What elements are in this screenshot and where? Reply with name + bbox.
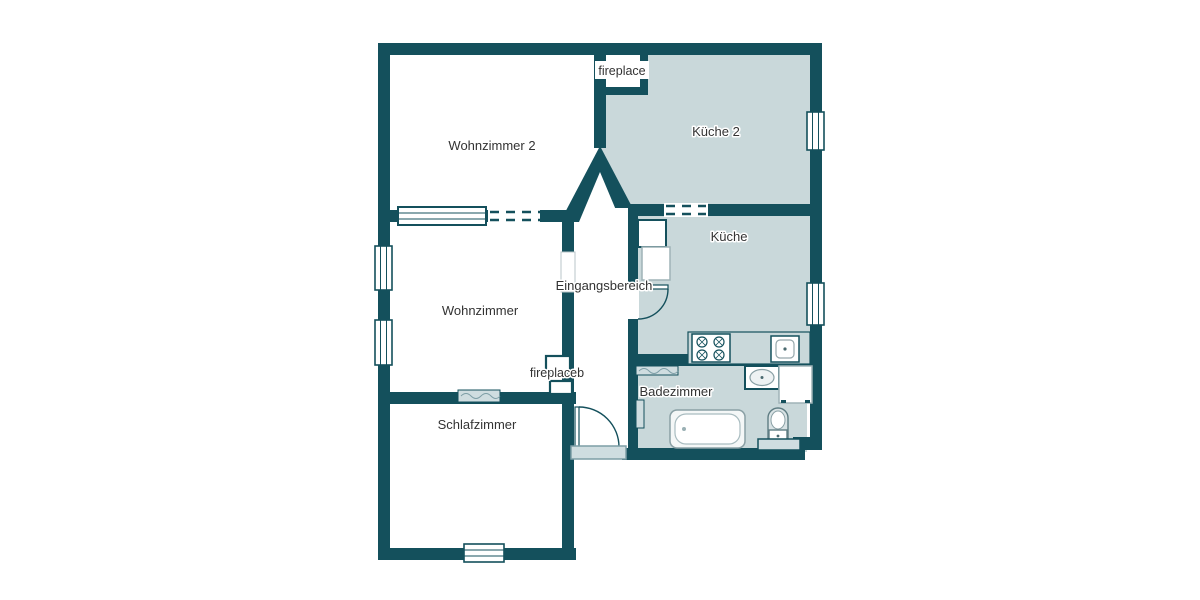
- window-icon: [398, 207, 486, 225]
- label-schlafzimmer: Schlafzimmer: [438, 417, 517, 432]
- radiator-icon: [458, 390, 500, 402]
- window-icon: [807, 283, 824, 325]
- stove-icon: [692, 334, 730, 362]
- washer-icon: [779, 366, 812, 403]
- opening-bay-corridor: [604, 208, 628, 230]
- fireplaceb-niche: [550, 381, 572, 394]
- floor-plan-canvas: fireplace Wohnzimmer 2 Küche 2 Küche Ein…: [0, 0, 1200, 600]
- label-kueche-2: Küche 2: [692, 124, 740, 139]
- floor-plan-drawing: fireplace Wohnzimmer 2 Küche 2 Küche Ein…: [0, 0, 1200, 600]
- doorstep-icon: [571, 446, 626, 459]
- dashed-opening-left: [488, 209, 540, 223]
- radiator-icon: [636, 400, 644, 428]
- pedestal-sink-icon: [768, 408, 788, 442]
- wall-divider-kueche: [628, 204, 810, 216]
- window-icon: [375, 320, 392, 365]
- room-wohnzimmer-2: [388, 53, 600, 213]
- fridge-icon: [642, 247, 670, 280]
- washbasin-icon: [745, 366, 779, 389]
- radiator-icon: [636, 366, 678, 375]
- dashed-opening-kueche: [664, 203, 708, 217]
- wall-schlafzimmer-right: [562, 392, 574, 560]
- wall-fireplace-niche-bottom: [600, 87, 648, 95]
- window-icon: [375, 246, 392, 290]
- wall-divider-top-rooms: [594, 43, 606, 148]
- wall-outer-left: [378, 43, 390, 560]
- label-badezimmer: Badezimmer: [640, 384, 714, 399]
- cupboard-icon: [638, 220, 666, 247]
- label-kueche: Küche: [711, 229, 748, 244]
- label-fireplaceb: fireplaceb: [530, 366, 584, 380]
- label-eingangsbereich: Eingangsbereich: [556, 278, 653, 293]
- label-fireplace: fireplace: [598, 64, 645, 78]
- bathtub-icon: [670, 410, 745, 448]
- kitchen-sink-icon: [771, 336, 799, 362]
- label-wohnzimmer-2: Wohnzimmer 2: [448, 138, 535, 153]
- window-icon: [464, 544, 504, 562]
- shelf-icon: [758, 439, 800, 450]
- label-wohnzimmer: Wohnzimmer: [442, 303, 519, 318]
- window-icon: [807, 112, 824, 150]
